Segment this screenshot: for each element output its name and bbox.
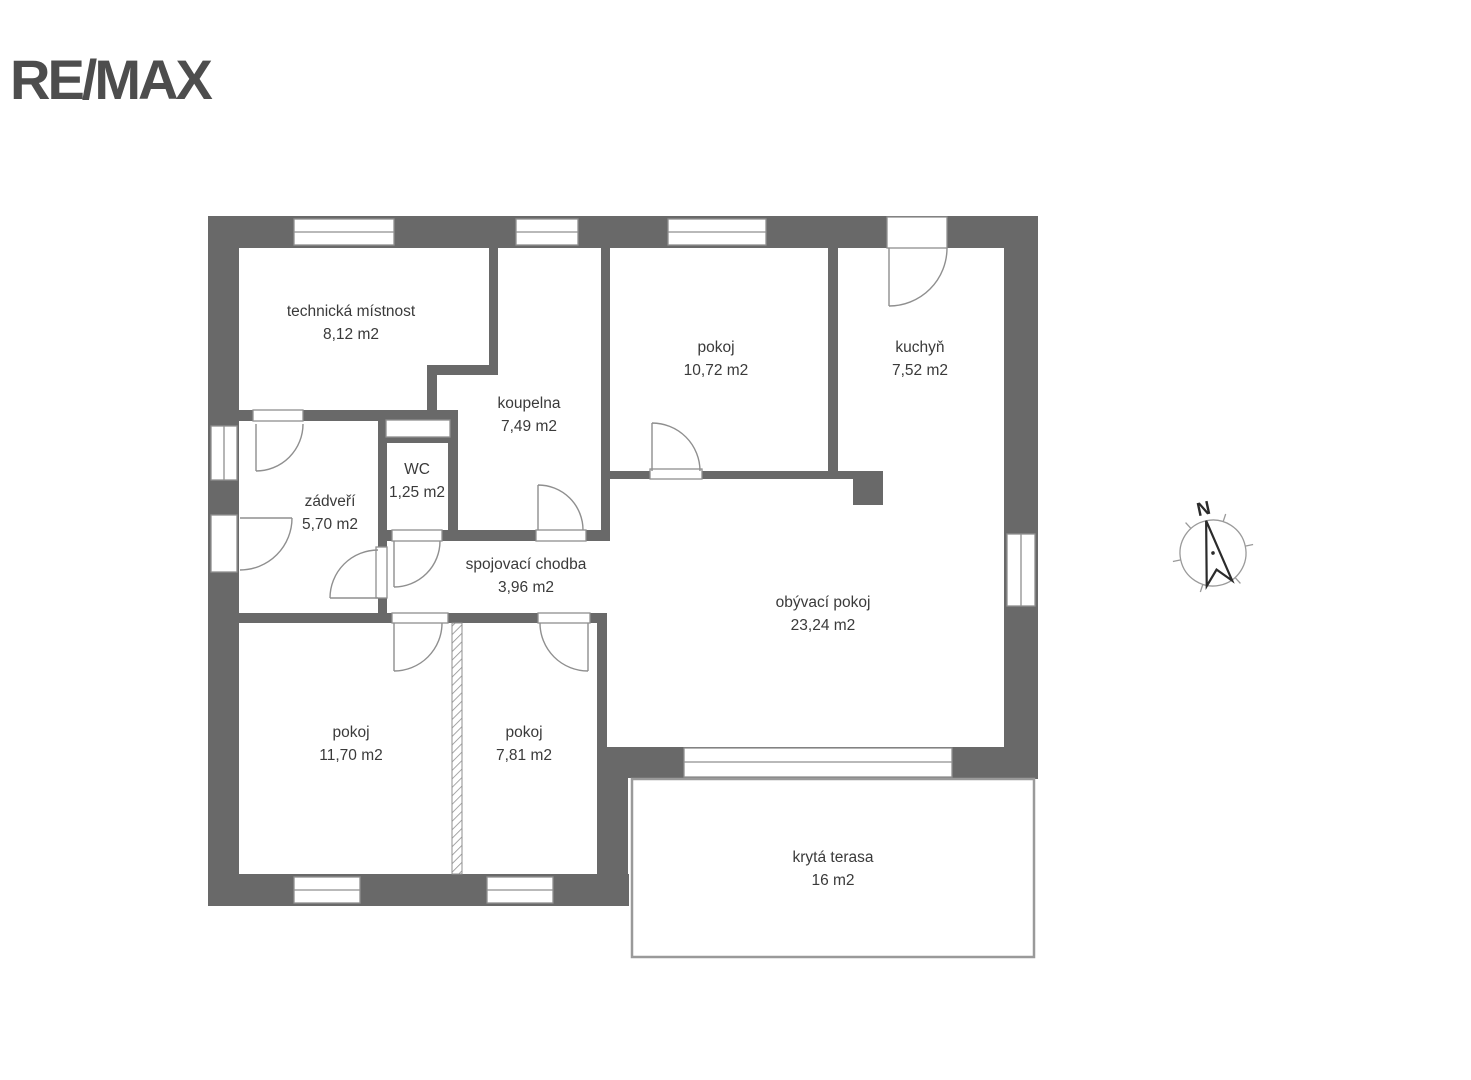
wall-koupelna-right <box>601 248 610 541</box>
room-name: pokoj <box>319 721 382 744</box>
wall-kuchyn-corner-block <box>853 471 883 505</box>
compass-north-icon: N <box>1161 491 1260 597</box>
wall-tech-right <box>489 248 498 375</box>
room-label-obyvaci-pokoj: obývací pokoj 23,24 m2 <box>776 591 871 637</box>
entrance-door-opening <box>211 515 237 572</box>
window-right <box>1007 534 1035 606</box>
room-label-pokoj-1170: pokoj 11,70 m2 <box>319 721 382 767</box>
wall-right <box>1004 216 1038 779</box>
hatched-partition <box>452 623 462 874</box>
wall-wc-right <box>448 421 458 541</box>
window-top-3 <box>668 219 766 245</box>
window-bottom-2 <box>487 877 553 903</box>
door-sill-pokoj781 <box>538 613 590 623</box>
wc-shaft-niche <box>386 420 450 437</box>
room-name: kuchyň <box>892 336 948 359</box>
room-label-kryta-terasa: krytá terasa 16 m2 <box>793 846 874 892</box>
room-area: 16 m2 <box>793 869 874 892</box>
door-sill-wc <box>392 530 442 541</box>
window-top-1 <box>294 219 394 245</box>
room-name: spojovací chodba <box>466 553 587 576</box>
wall-pokoj781-right <box>597 613 607 747</box>
room-name: technická místnost <box>287 300 415 323</box>
door-sill-koupelna <box>536 530 586 541</box>
door-sill-pokoj1072 <box>650 469 702 479</box>
compass-north-label: N <box>1195 498 1213 521</box>
window-top-2 <box>516 219 578 245</box>
window-left <box>211 426 237 480</box>
room-area: 23,24 m2 <box>776 614 871 637</box>
kitchen-door-opening <box>887 217 947 248</box>
floor-plan-page: RE/MAX <box>0 0 1471 1080</box>
room-area: 5,70 m2 <box>302 513 358 536</box>
door-arc-entrance <box>240 518 292 570</box>
room-name: WC <box>389 458 445 481</box>
wall-bottom-left <box>208 874 629 906</box>
wall-kuchyn-divider <box>828 248 838 471</box>
room-label-technicka-mistnost: technická místnost 8,12 m2 <box>287 300 415 346</box>
room-name: obývací pokoj <box>776 591 871 614</box>
room-label-zadveri: zádveří 5,70 m2 <box>302 490 358 536</box>
room-name: zádveří <box>302 490 358 513</box>
room-name: pokoj <box>496 721 552 744</box>
door-arc-pokoj781 <box>540 623 588 671</box>
room-area: 11,70 m2 <box>319 744 382 767</box>
window-bottom-1 <box>294 877 360 903</box>
sliding-door-terrace <box>684 748 952 777</box>
room-label-kuchyn: kuchyň 7,52 m2 <box>892 336 948 382</box>
floor-plan-svg: N <box>0 0 1471 1080</box>
door-arc-pokoj1072 <box>652 423 700 471</box>
door-arc-koupelna <box>538 485 583 530</box>
door-arc-pokoj1170 <box>394 623 442 671</box>
room-area: 7,52 m2 <box>892 359 948 382</box>
room-name: koupelna <box>498 392 561 415</box>
door-sill-zadveri-chodba <box>376 547 387 598</box>
room-area: 7,49 m2 <box>498 415 561 438</box>
door-sill-technicka <box>253 410 303 421</box>
room-area: 3,96 m2 <box>466 576 587 599</box>
room-area: 8,12 m2 <box>287 323 415 346</box>
wall-tech-jog-v <box>427 365 437 417</box>
door-arc-technicka <box>256 424 303 471</box>
door-arc-zadveri-chodba <box>330 550 378 598</box>
wall-pokoj1072-bottom <box>610 471 853 479</box>
wall-corner-block <box>597 747 628 906</box>
door-sill-pokoj1170 <box>392 613 448 623</box>
room-label-spojovaci-chodba: spojovací chodba 3,96 m2 <box>466 553 587 599</box>
room-area: 1,25 m2 <box>389 481 445 504</box>
wall-tech-jog-h <box>427 365 498 375</box>
room-label-pokoj-781: pokoj 7,81 m2 <box>496 721 552 767</box>
door-arc-kuchyn <box>889 248 947 306</box>
room-name: krytá terasa <box>793 846 874 869</box>
room-label-wc: WC 1,25 m2 <box>389 458 445 504</box>
room-name: pokoj <box>684 336 749 359</box>
room-label-koupelna: koupelna 7,49 m2 <box>498 392 561 438</box>
room-area: 7,81 m2 <box>496 744 552 767</box>
room-label-pokoj-1072: pokoj 10,72 m2 <box>684 336 749 382</box>
room-area: 10,72 m2 <box>684 359 749 382</box>
door-arc-wc <box>394 541 440 587</box>
